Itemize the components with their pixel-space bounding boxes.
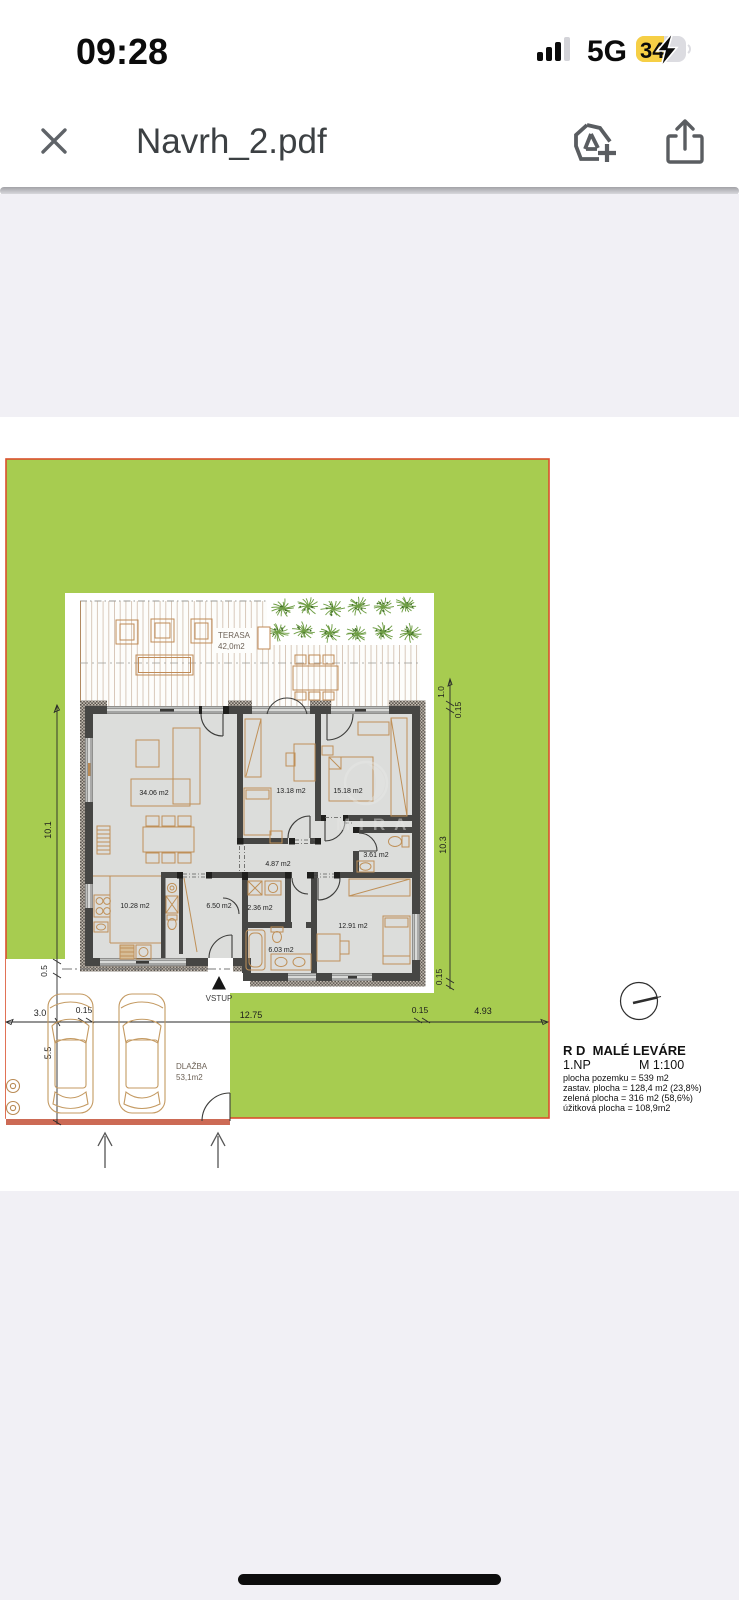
svg-text:42,0m2: 42,0m2	[218, 642, 245, 651]
svg-text:M 1:100: M 1:100	[639, 1058, 684, 1072]
svg-text:úžitková plocha = 108,9m2: úžitková plocha = 108,9m2	[563, 1103, 670, 1113]
svg-text:15.18 m2: 15.18 m2	[333, 788, 362, 795]
svg-text:3.61 m2: 3.61 m2	[363, 852, 388, 859]
svg-text:12.91 m2: 12.91 m2	[338, 923, 367, 930]
svg-text:zelená plocha = 316 m2 (58,6%): zelená plocha = 316 m2 (58,6%)	[563, 1093, 693, 1103]
svg-text:3.0: 3.0	[34, 1008, 47, 1018]
svg-text:34.06 m2: 34.06 m2	[139, 790, 168, 797]
svg-text:1.NP: 1.NP	[563, 1058, 591, 1072]
svg-text:10.28 m2: 10.28 m2	[120, 903, 149, 910]
svg-text:VSTUP: VSTUP	[206, 994, 233, 1003]
svg-text:R D MALÉ LEVÁRE: R D MALÉ LEVÁRE	[563, 1043, 686, 1058]
svg-text:zastav. plocha = 128,4 m2 (23,: zastav. plocha = 128,4 m2 (23,8%)	[563, 1083, 702, 1093]
svg-text:0.5: 0.5	[39, 965, 49, 977]
svg-text:10.1: 10.1	[43, 821, 53, 839]
svg-text:DLAŽBA: DLAŽBA	[176, 1062, 208, 1071]
svg-text:1.0: 1.0	[436, 686, 446, 698]
svg-text:10.3: 10.3	[438, 836, 448, 854]
svg-text:0.15: 0.15	[434, 968, 444, 985]
svg-text:2.36 m2: 2.36 m2	[247, 905, 272, 912]
svg-text:0.15: 0.15	[453, 701, 463, 718]
svg-text:4.93: 4.93	[474, 1006, 492, 1016]
svg-text:12.75: 12.75	[240, 1010, 263, 1020]
svg-text:plocha pozemku = 539 m2: plocha pozemku = 539 m2	[563, 1073, 669, 1083]
svg-text:53,1m2: 53,1m2	[176, 1073, 203, 1082]
svg-text:6.50 m2: 6.50 m2	[206, 903, 231, 910]
svg-text:TERASA: TERASA	[218, 631, 251, 640]
svg-text:6.03 m2: 6.03 m2	[268, 947, 293, 954]
svg-text:4.87 m2: 4.87 m2	[265, 861, 290, 868]
svg-text:0.15: 0.15	[76, 1005, 93, 1015]
svg-text:0.15: 0.15	[412, 1005, 429, 1015]
svg-text:13.18 m2: 13.18 m2	[276, 788, 305, 795]
